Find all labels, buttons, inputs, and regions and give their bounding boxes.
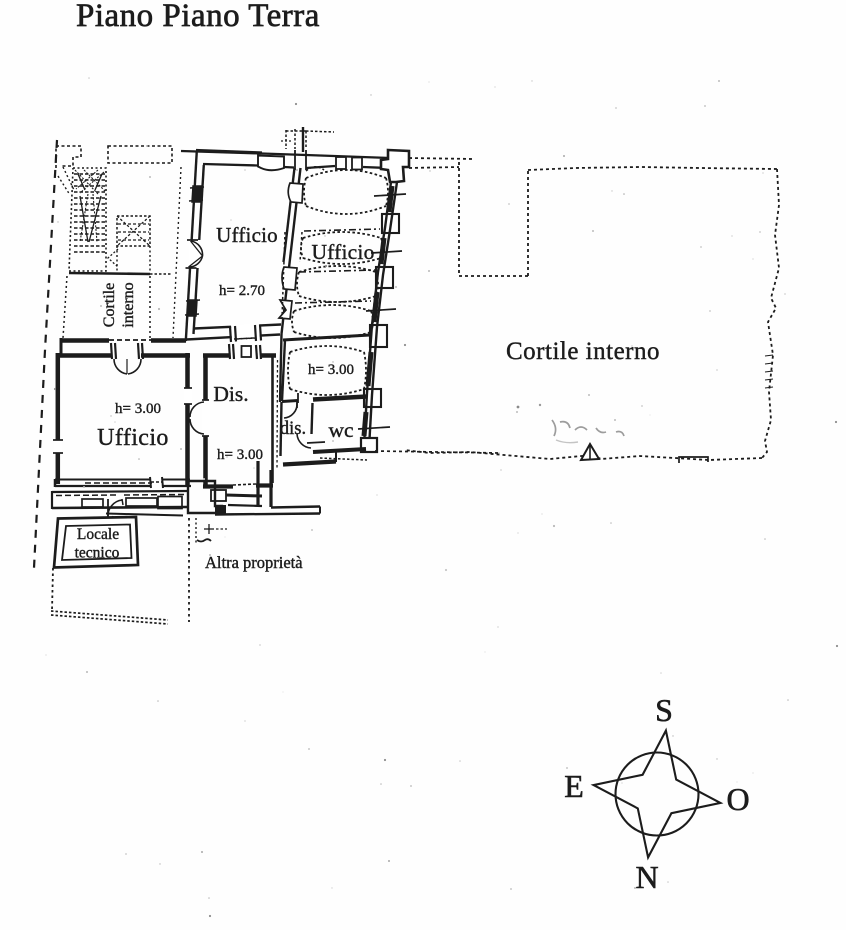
svg-text:Ufficio: Ufficio: [97, 425, 169, 451]
svg-text:wc: wc: [328, 418, 353, 442]
svg-text:h= 2.70: h= 2.70: [219, 283, 265, 299]
svg-text:Dis.: Dis.: [213, 382, 248, 406]
svg-text:Locale: Locale: [77, 526, 119, 543]
svg-text:h= 3.00: h= 3.00: [115, 401, 161, 417]
svg-text:h= 3.00: h= 3.00: [217, 447, 263, 463]
svg-text:dis.: dis.: [280, 419, 306, 439]
svg-text:tecnico: tecnico: [75, 545, 120, 562]
svg-text:N: N: [635, 859, 658, 895]
svg-text:Cortile interno: Cortile interno: [506, 338, 660, 365]
svg-text:Altra proprietà: Altra proprietà: [205, 553, 303, 572]
svg-text:S: S: [655, 692, 673, 728]
svg-text:Ufficio: Ufficio: [216, 223, 278, 247]
svg-text:O: O: [726, 781, 749, 817]
svg-text:E: E: [564, 768, 584, 804]
svg-text:Cortile: Cortile: [101, 283, 118, 327]
svg-text:h= 3.00: h= 3.00: [308, 362, 354, 378]
svg-text:Piano Piano Terra: Piano Piano Terra: [76, 0, 320, 34]
svg-text:Ufficio: Ufficio: [311, 240, 374, 264]
svg-text:interno: interno: [120, 282, 137, 327]
